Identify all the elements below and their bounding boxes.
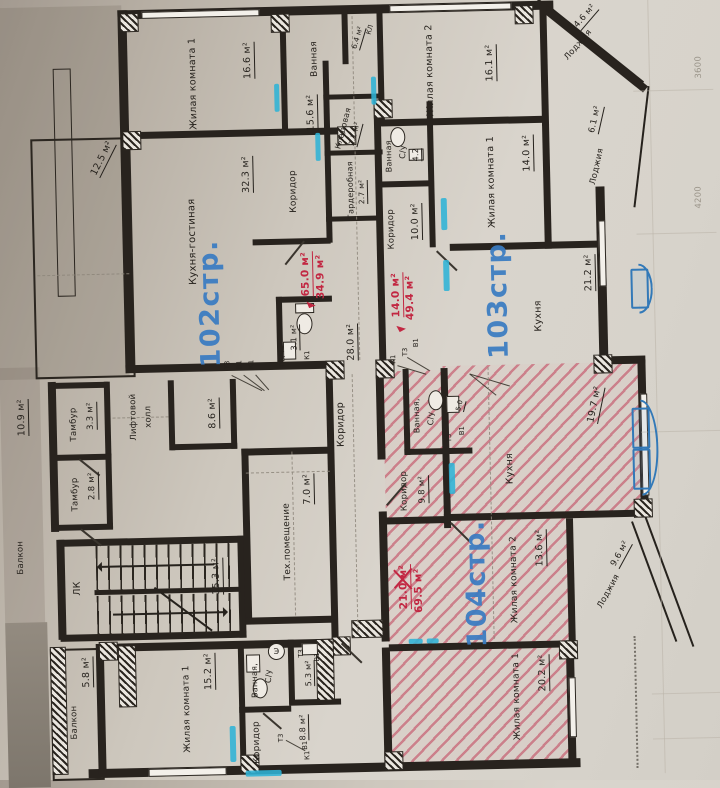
balcony-area: 5.8 м² bbox=[80, 657, 94, 688]
room-area: 5.3 м² bbox=[304, 660, 316, 686]
column bbox=[514, 5, 533, 24]
floor-plan: Э Жилая комната 1 16.6 м² Ванная 15.6 м²… bbox=[0, 0, 720, 788]
margin-line bbox=[637, 232, 717, 235]
axis-line bbox=[352, 374, 359, 632]
room-name: Коридор bbox=[386, 209, 397, 250]
utility-marker: В1 bbox=[313, 652, 321, 661]
utility-marker: К1 bbox=[303, 351, 311, 360]
cyan-window-mark bbox=[230, 726, 237, 762]
room-name: Жилая комната 1 bbox=[181, 665, 193, 753]
wall bbox=[104, 382, 112, 456]
room-area: 3.1 м² bbox=[289, 324, 301, 350]
room-area: 13.6 м² bbox=[534, 529, 548, 566]
utility-marker: К1 bbox=[247, 360, 255, 369]
room-area: 6.1 м² bbox=[587, 105, 605, 135]
column bbox=[119, 13, 138, 32]
room-area: 15.6 м² bbox=[305, 94, 319, 131]
utility-marker: К1 bbox=[389, 355, 397, 364]
cyan-window-mark bbox=[441, 198, 448, 230]
room-area: 16.6 м² bbox=[242, 42, 256, 79]
red-note-living: 34.9 м² bbox=[314, 254, 327, 299]
room-area: 10.0 м² bbox=[409, 203, 423, 240]
room-area: 21.2 м² bbox=[582, 254, 596, 291]
room-area: 4.2 bbox=[411, 148, 422, 162]
cyan-window-mark bbox=[427, 638, 439, 643]
window bbox=[598, 220, 606, 286]
grid-dimension: 4200 bbox=[693, 186, 704, 209]
red-note-living: 14.0 м² bbox=[389, 273, 404, 318]
room-area: 2.1 м² bbox=[347, 121, 364, 147]
stove-letter: Э bbox=[274, 647, 280, 656]
hatched-wall bbox=[118, 645, 137, 707]
room-name: Гардеробная bbox=[345, 161, 355, 219]
stove-symbol: Э bbox=[268, 643, 285, 660]
column bbox=[270, 14, 289, 33]
room-name: холл bbox=[143, 406, 153, 428]
wall bbox=[378, 180, 432, 187]
margin-line bbox=[647, 0, 666, 773]
red-note-total: 65.0 м² bbox=[299, 252, 314, 297]
stairs-arrow-head-left bbox=[92, 562, 102, 572]
room-area: 16.1 м² bbox=[484, 44, 498, 81]
wall bbox=[239, 706, 291, 713]
red-note-total: 49.4 м² bbox=[403, 275, 416, 320]
room-name: Коридор bbox=[251, 721, 262, 764]
apartment-number-103: 103стр. bbox=[481, 230, 515, 359]
room-area: 9.6 м² bbox=[609, 539, 633, 569]
room-area: 3.3 м² bbox=[85, 402, 98, 430]
utility-marker: В1 bbox=[301, 741, 309, 750]
wall bbox=[56, 540, 66, 640]
room-name: Балкон bbox=[15, 541, 26, 575]
cyan-window-mark bbox=[409, 639, 423, 644]
window bbox=[569, 677, 577, 737]
utility-marker: В1 bbox=[412, 338, 420, 347]
room-name: Лоджия bbox=[595, 573, 622, 610]
wall bbox=[230, 379, 238, 449]
room-name: ЛК bbox=[72, 581, 83, 596]
room-name: С/у bbox=[426, 411, 435, 425]
floor-plan-photo: { "title": "Поэтажный план (фрагмент): к… bbox=[0, 0, 720, 780]
red-note-total: 69.5 м² bbox=[412, 568, 425, 613]
grid-dimension: 3600 bbox=[694, 56, 705, 79]
room-name: Жилая комната 2 bbox=[508, 536, 520, 624]
room-area: 2.8 м² bbox=[87, 472, 100, 500]
room-name: Жилая комната 1 bbox=[186, 38, 199, 130]
room-name: Кухня bbox=[533, 300, 545, 331]
column bbox=[559, 640, 578, 659]
wall bbox=[245, 616, 335, 625]
column bbox=[122, 131, 141, 150]
hatched-wall bbox=[316, 639, 335, 701]
wall bbox=[450, 240, 602, 250]
room-name: Лифтовой bbox=[128, 393, 139, 440]
room-name: Ванная, bbox=[250, 663, 260, 698]
room-area: 20.2 м² bbox=[537, 654, 551, 691]
dimension-line bbox=[634, 636, 639, 768]
room-name: Тамбур bbox=[68, 407, 79, 441]
hatch-104-kitchen bbox=[442, 362, 643, 518]
wall bbox=[171, 443, 237, 450]
cyan-window-mark bbox=[443, 260, 450, 291]
column bbox=[325, 360, 344, 379]
room-name: Ванная, bbox=[412, 398, 422, 433]
room-name: Балкон bbox=[69, 706, 80, 740]
column bbox=[99, 642, 118, 661]
room-area: 2.7 м² bbox=[357, 180, 369, 205]
column bbox=[593, 354, 612, 373]
room-area: 9.8 м² bbox=[417, 476, 430, 504]
utility-marker: В1 bbox=[458, 426, 466, 435]
room-area: 28.0 м² bbox=[345, 324, 359, 361]
wall bbox=[539, 4, 549, 126]
room-area: 32.3 м² bbox=[240, 156, 254, 193]
hatched-wall bbox=[351, 620, 383, 639]
wall bbox=[50, 382, 108, 389]
wall bbox=[566, 518, 576, 646]
wall bbox=[542, 123, 552, 249]
column bbox=[384, 751, 403, 770]
room-area: 15.3 м² bbox=[210, 558, 224, 595]
blue-drawn-arc bbox=[638, 263, 653, 313]
cyan-window-mark bbox=[274, 84, 280, 112]
window bbox=[149, 767, 227, 777]
room-name: Тамбур bbox=[70, 477, 81, 511]
apartment-number-104: 104стр. bbox=[459, 519, 493, 648]
door-swing bbox=[263, 712, 282, 729]
balcony-left-rail bbox=[30, 137, 135, 379]
room-name: Жилая комната 1 bbox=[511, 653, 523, 741]
window-bay-left bbox=[53, 68, 76, 296]
room-name: Ванная bbox=[309, 41, 320, 77]
room-name: Жилая комната 1 bbox=[485, 136, 498, 228]
utility-marker: В1 bbox=[235, 360, 243, 369]
room-name: Лоджия bbox=[588, 147, 606, 186]
apartment-number-102: 102стр. bbox=[193, 239, 227, 368]
utility-marker: Т3 bbox=[223, 361, 231, 370]
room-area: 15.2 м² bbox=[202, 653, 216, 690]
room-name: Жилая комната 2 bbox=[423, 24, 436, 116]
loggia-61-rail bbox=[633, 86, 649, 207]
room-area: 8.8 м² bbox=[298, 714, 310, 740]
column bbox=[634, 498, 653, 517]
room-area: 14.0 м² bbox=[521, 135, 535, 172]
cyan-window-mark bbox=[371, 77, 377, 105]
utility-marker: К1 bbox=[303, 751, 311, 760]
axis-line bbox=[246, 471, 330, 474]
room-name: Коридор bbox=[335, 402, 347, 447]
red-arrow bbox=[393, 326, 405, 338]
room-name: Ванная bbox=[384, 140, 394, 172]
wall bbox=[96, 644, 107, 774]
stairs-arrow-head-right bbox=[223, 607, 233, 617]
wall bbox=[373, 99, 386, 361]
window bbox=[141, 9, 259, 19]
utility-marker: Т3 bbox=[277, 734, 285, 743]
wall bbox=[377, 116, 545, 127]
room-area: 8.6 м² bbox=[207, 398, 221, 429]
wall bbox=[253, 238, 331, 246]
wall bbox=[386, 516, 448, 524]
wall bbox=[288, 640, 295, 704]
room-name: Коридор bbox=[399, 471, 410, 512]
balcony-area: 10.9 м² bbox=[16, 399, 30, 436]
room-name: Тех.помещение bbox=[282, 503, 294, 581]
cyan-window-mark bbox=[315, 133, 321, 161]
utility-marker: Т3 bbox=[297, 649, 305, 658]
hatched-wall bbox=[50, 647, 69, 775]
room-area: 7.0 м² bbox=[301, 474, 315, 505]
wall bbox=[341, 8, 348, 64]
cyan-window-mark bbox=[449, 463, 456, 494]
axis-line bbox=[113, 416, 169, 418]
room-name: Кухня bbox=[504, 453, 516, 484]
room-name: С/у bbox=[264, 669, 273, 683]
room-name: С/у bbox=[398, 145, 407, 159]
utility-marker: Т3 bbox=[401, 348, 409, 357]
wall bbox=[168, 380, 176, 450]
cyan-window-mark bbox=[246, 770, 282, 777]
utility-note: ПБ/ч bbox=[278, 351, 286, 367]
column bbox=[332, 636, 351, 655]
room-name: Коридор bbox=[288, 170, 299, 213]
shadow-bottom-left bbox=[5, 622, 51, 788]
utility-marker: Т3 bbox=[445, 434, 453, 443]
wall bbox=[241, 447, 331, 456]
wall bbox=[105, 454, 113, 528]
